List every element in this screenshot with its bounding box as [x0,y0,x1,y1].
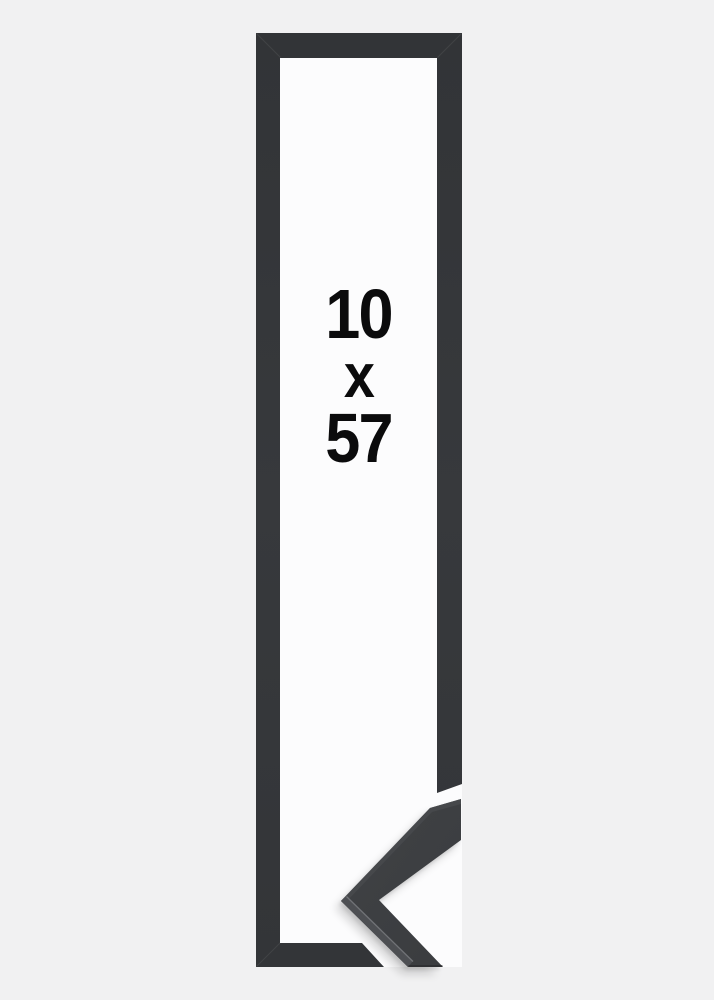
product-image: 10 x 57 [0,0,714,1000]
size-height-value: 57 [325,407,391,469]
size-width-value: 10 [325,283,391,345]
size-label: 10 x 57 [288,283,429,469]
frame-graphic [0,0,714,1000]
